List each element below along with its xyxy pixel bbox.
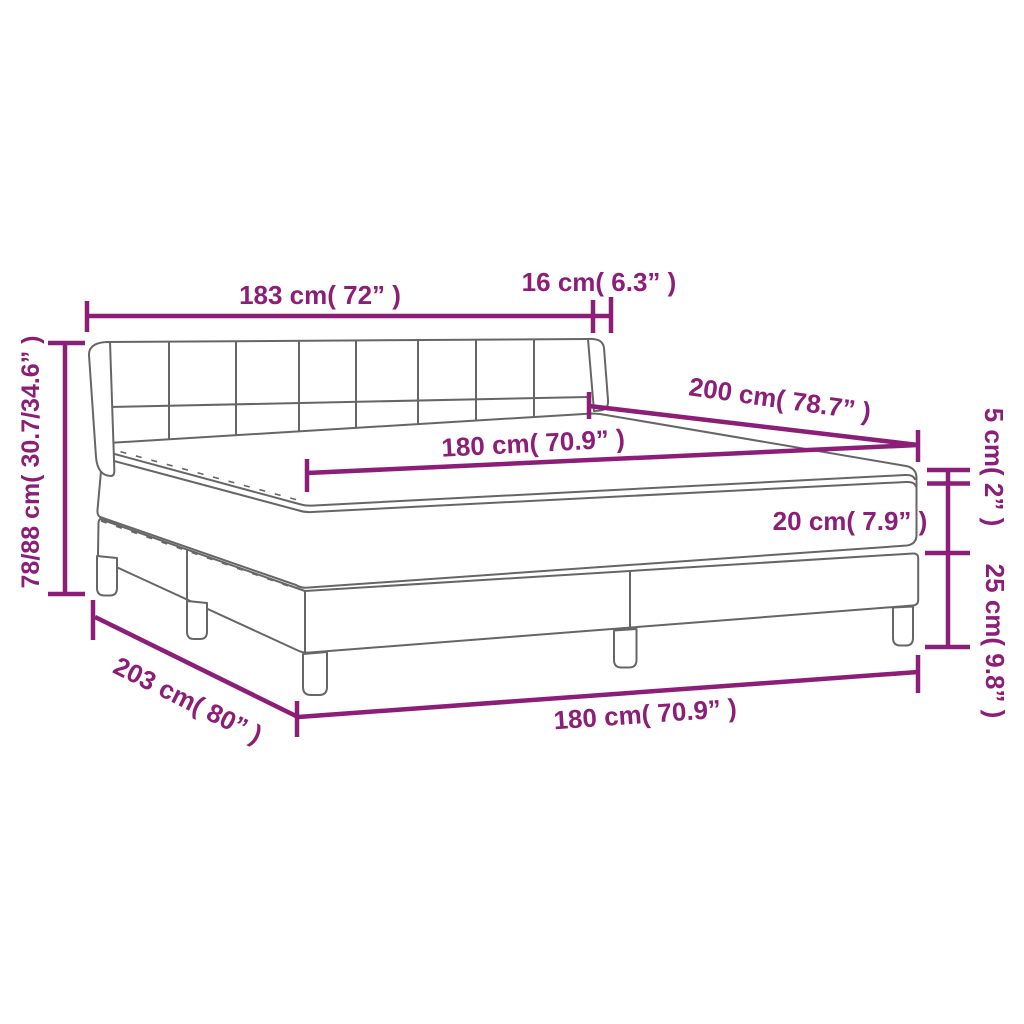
bed-diagram-svg: 183 cm( 72” ) 16 cm( 6.3” ) 200 cm( 78.7… — [0, 0, 1024, 1024]
dim-label-topper-height: 5 cm( 2” ) — [979, 408, 1009, 527]
dim-label-headboard-width: 183 cm( 72” ) — [239, 280, 401, 310]
dim-label-base-height: 25 cm( 9.8” ) — [980, 564, 1010, 719]
dimension-diagram: 183 cm( 72” ) 16 cm( 6.3” ) 200 cm( 78.7… — [0, 0, 1024, 1024]
dim-line-total-height — [48, 343, 85, 594]
dim-line-height-brackets — [925, 470, 970, 647]
leg-front-middle — [614, 629, 637, 668]
headboard-left-wing — [89, 342, 114, 476]
dim-label-mattress-height: 20 cm( 7.9” ) — [773, 506, 928, 536]
dim-label-total-height: 78/88 cm( 30.7/34.6” ) — [17, 336, 45, 589]
dim-label-base-length: 203 cm( 80” ) — [109, 650, 267, 749]
leg-back-left — [97, 556, 117, 596]
dim-label-wing-depth: 16 cm( 6.3” ) — [522, 267, 677, 297]
leg-left-middle — [187, 601, 207, 639]
dim-label-bed-length: 200 cm( 78.7” ) — [687, 371, 873, 426]
leg-front-right — [893, 607, 913, 646]
leg-front-left — [303, 652, 327, 695]
dim-label-base-width: 180 cm( 70.9” ) — [553, 693, 738, 736]
